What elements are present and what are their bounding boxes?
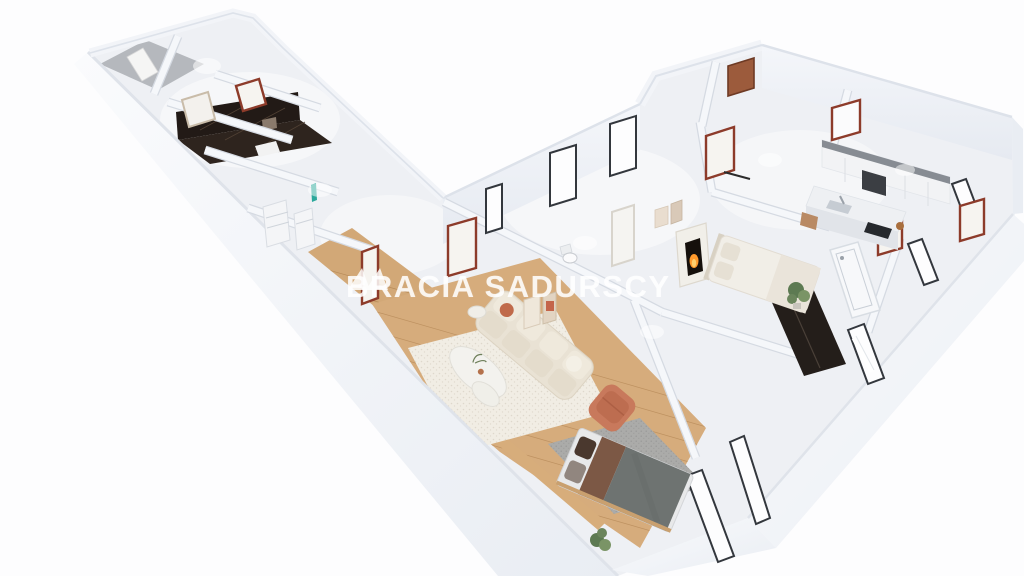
side-table xyxy=(468,306,486,318)
white-door xyxy=(612,205,634,266)
window-icon xyxy=(550,145,576,206)
block-right-cap-wall xyxy=(1012,117,1023,214)
mahogany-door xyxy=(706,127,734,179)
window-icon xyxy=(486,184,502,233)
mahogany-door xyxy=(960,199,984,241)
mahogany-door xyxy=(236,79,266,111)
window-icon xyxy=(610,116,636,176)
mahogany-door xyxy=(362,246,378,304)
floorplan-3d-render: BRACIA SADURSCY xyxy=(0,0,1024,576)
wood-bowl xyxy=(896,222,904,230)
mahogany-window-frame xyxy=(832,100,860,140)
floorplan-3d-scene xyxy=(0,0,1024,576)
mahogany-door xyxy=(448,218,476,276)
shelf-rack xyxy=(263,200,290,247)
shelf-rack xyxy=(294,208,315,250)
